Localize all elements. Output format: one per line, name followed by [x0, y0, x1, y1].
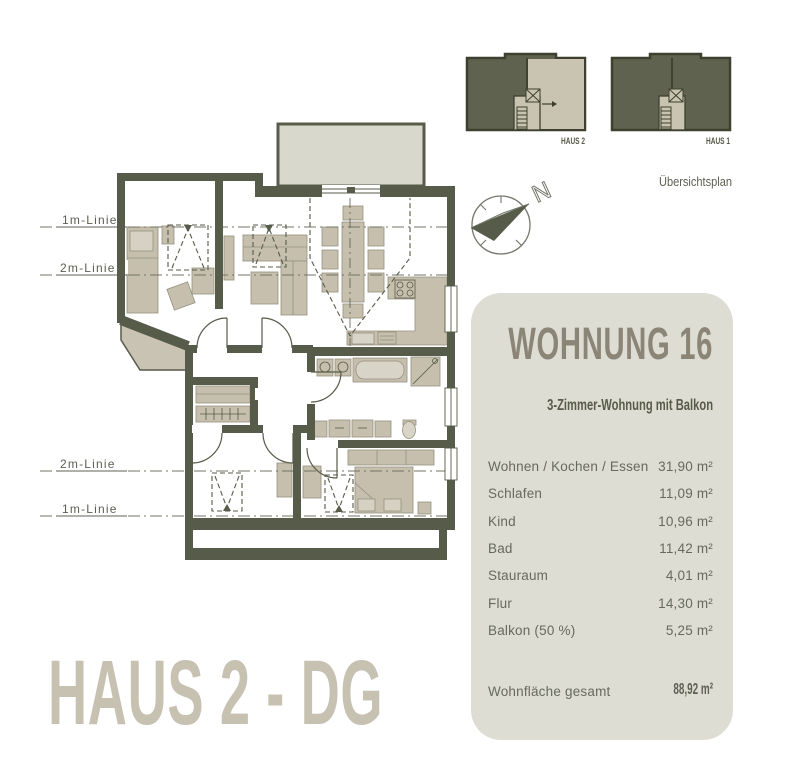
room-label: Kind	[488, 514, 516, 529]
kind-desk	[192, 268, 214, 294]
room-area: 5,25 m²	[666, 623, 713, 638]
room-row: Stauraum 4,01 m²	[488, 562, 713, 589]
elevator-icon	[669, 89, 683, 102]
compass-needle-dark	[471, 204, 529, 241]
room-row: Wohnen / Kochen / Essen 31,90 m²	[488, 453, 713, 480]
room-row: Flur 14,30 m²	[488, 589, 713, 616]
floor-plan: 1m-Linie 2m-Linie 2m-Linie 1m-Linie	[40, 124, 457, 560]
line-label-2m-top: 2m-Linie	[60, 261, 116, 275]
room-label: Balkon (50 %)	[488, 623, 575, 638]
balcony	[278, 124, 424, 186]
living-shelf	[224, 236, 234, 280]
line-label-1m-bottom: 1m-Linie	[62, 502, 118, 516]
line-label-1m-top: 1m-Linie	[62, 213, 118, 227]
room-label: Schlafen	[488, 486, 542, 501]
overview-plans: HAUS 2 HAUS 1 Übersichtsplan	[467, 54, 732, 189]
kind-bed	[127, 227, 158, 313]
total-area-value: 88,92 m²	[673, 681, 713, 699]
room-label: Bad	[488, 541, 513, 556]
room-area: 31,90 m²	[658, 459, 713, 474]
page: 1m-Linie 2m-Linie 2m-Linie 1m-Linie	[0, 0, 789, 757]
stairs-icon	[661, 107, 671, 129]
bathtub	[353, 358, 407, 382]
room-area: 11,09 m²	[659, 486, 713, 501]
hall-wardrobe	[277, 463, 292, 497]
kitchen-unit	[378, 332, 396, 344]
room-area: 14,30 m²	[658, 596, 713, 611]
room-label: Flur	[488, 596, 512, 611]
sheet-title: HAUS 2 - DG	[48, 652, 383, 735]
compass: N	[471, 177, 555, 254]
room-row: Bad 11,42 m²	[488, 535, 713, 562]
room-area: 4,01 m²	[666, 568, 713, 583]
washbasins	[313, 420, 391, 437]
coffee-table	[251, 272, 278, 304]
apartment-subtitle: 3-Zimmer-Wohnung mit Balkon	[547, 397, 713, 415]
room-area: 11,42 m²	[659, 541, 713, 556]
double-bed	[355, 467, 413, 513]
room-row: Schlafen 11,09 m²	[488, 480, 713, 507]
kitchen-window	[445, 286, 457, 332]
room-row: Balkon (50 %) 5,25 m²	[488, 617, 713, 644]
apartment-title: WOHNUNG 16	[508, 321, 713, 366]
balcony-door	[322, 185, 380, 198]
room-row: Kind 10,96 m²	[488, 508, 713, 535]
total-area-row: Wohnfläche gesamt 88,92 m²	[488, 679, 713, 699]
toilet	[403, 420, 417, 439]
north-label: N	[528, 177, 555, 209]
elevator-icon	[526, 89, 540, 102]
overview-haus2: HAUS 2	[467, 54, 585, 147]
room-label: Stauraum	[488, 568, 548, 583]
room-area: 10,96 m²	[658, 514, 713, 529]
room-label: Wohnen / Kochen / Essen	[488, 459, 648, 474]
overview-haus1-label: HAUS 1	[706, 136, 730, 147]
nightstand	[418, 502, 431, 514]
total-label: Wohnfläche gesamt	[488, 684, 610, 699]
bedroom-wardrobe	[348, 450, 434, 465]
shower	[411, 357, 440, 386]
overview-caption: Übersichtsplan	[659, 174, 732, 189]
kitchen-sink	[352, 333, 374, 344]
line-label-2m-bottom: 2m-Linie	[60, 457, 116, 471]
bath-window	[445, 388, 457, 426]
room-area-list: Wohnen / Kochen / Essen 31,90 m² Schlafe…	[488, 453, 713, 644]
overview-haus1: HAUS 1	[612, 54, 730, 147]
overview-haus2-label: HAUS 2	[561, 136, 585, 147]
stairs-icon	[517, 107, 527, 129]
apartment-info-panel: WOHNUNG 16 3-Zimmer-Wohnung mit Balkon W…	[471, 293, 733, 740]
bedroom-window	[445, 448, 457, 480]
